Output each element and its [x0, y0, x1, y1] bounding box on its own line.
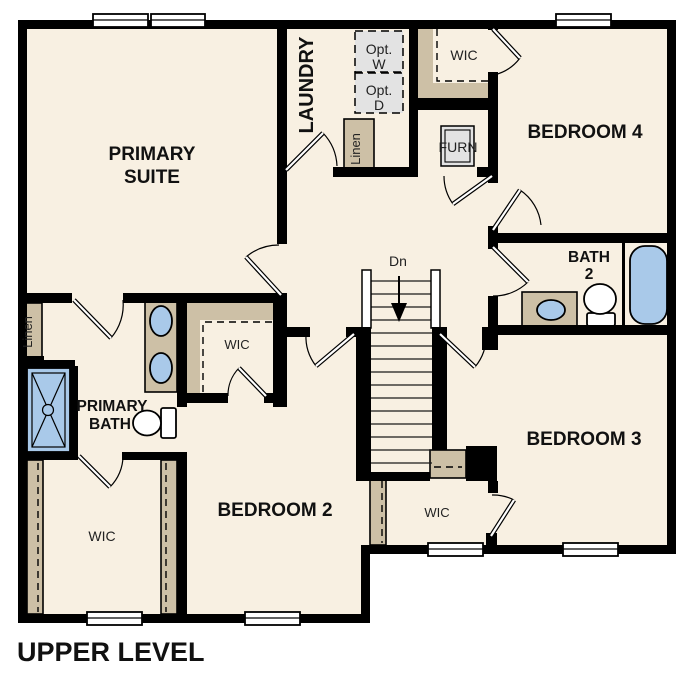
wall-primary-east	[277, 24, 287, 244]
primary-suite-label-line1: PRIMARY	[109, 144, 196, 165]
stairs-dn-label: Dn	[389, 253, 407, 269]
stair-rail-left	[362, 270, 371, 328]
wall-stairs-east	[432, 327, 447, 450]
wall-primary-south-2	[123, 293, 287, 303]
bath2-label-line2: 2	[585, 266, 594, 283]
window-bedroom4	[556, 14, 611, 27]
primary-bath-label-line2: BATH	[89, 416, 131, 433]
washer-label-line1: Opt.	[366, 41, 392, 57]
floor-plan-canvas: Opt. W Opt. D	[0, 0, 687, 687]
primary-vanity-sink-1	[150, 306, 172, 336]
wall-primarywic-east	[273, 293, 287, 407]
window-wic-bedroom3	[428, 543, 483, 556]
bedroom4-label: BEDROOM 4	[527, 122, 643, 143]
shower-drain	[43, 405, 54, 416]
window-wic-bottom-left	[87, 612, 142, 625]
wall-bed3-west-stub	[482, 327, 498, 350]
bath2-label-line1: BATH	[568, 249, 610, 266]
wall-exterior-bottom-right	[361, 545, 676, 554]
wall-exterior-step	[361, 545, 370, 623]
dryer-label-line1: Opt.	[366, 82, 392, 98]
primary-vanity-sink-2	[150, 353, 172, 383]
laundry-label: LAUNDRY	[296, 36, 318, 134]
wall-bed2-west	[177, 452, 187, 623]
primary-suite-label-line2: SUITE	[124, 167, 180, 188]
wall-primarywic-west	[177, 293, 187, 407]
wall-bath2-north	[488, 233, 676, 243]
toilet-bowl	[584, 284, 616, 314]
wall-tub-partition	[622, 243, 625, 327]
wic-b3-shelf-top	[430, 450, 466, 478]
optional-dryer: Opt. D	[355, 73, 403, 113]
bedroom2-label: BEDROOM 2	[217, 500, 332, 521]
wall-stairs-west	[356, 327, 371, 481]
bath2-sink	[537, 300, 565, 320]
wic-bottom-left-label: WIC	[88, 528, 115, 544]
wall-exterior-right	[667, 20, 676, 554]
wic-b3-shelf-left	[370, 478, 386, 545]
wall-bathhall-south-1	[18, 452, 78, 460]
primary-wic-label: WIC	[224, 337, 249, 352]
primary-wic-shelf-left	[187, 303, 200, 403]
wall-bed4-west-mid	[488, 72, 498, 183]
wall-shower-north	[18, 360, 75, 368]
wall-primary-south-1	[18, 293, 72, 303]
wall-wictop-south	[409, 98, 498, 110]
window-bedroom2	[245, 612, 300, 625]
linen-left-label: Linen	[20, 316, 35, 348]
wall-wicb3-east-top	[488, 481, 498, 493]
bathtub	[630, 246, 667, 324]
toilet-tank	[161, 408, 176, 438]
wall-stairs-south	[356, 472, 430, 481]
furnace-label: FURN	[439, 139, 478, 155]
optional-washer: Opt. W	[355, 31, 403, 72]
wall-laundry-south-2	[335, 167, 413, 177]
washer-label-line2: W	[372, 56, 386, 72]
plan-title: UPPER LEVEL	[17, 637, 205, 667]
bedroom3-label: BEDROOM 3	[526, 429, 641, 450]
window-primary-suite-2	[151, 14, 205, 27]
window-bedroom3	[563, 543, 618, 556]
wic-top-label: WIC	[450, 47, 477, 63]
wall-primarywic-south-1	[177, 393, 228, 403]
window-primary-suite-1	[93, 14, 148, 27]
wic-bedroom3-label: WIC	[424, 505, 449, 520]
wic-bl-shelf-left	[27, 460, 43, 614]
wall-bath2-south	[488, 325, 676, 335]
wic-top-shelf-bottom	[418, 83, 488, 98]
primary-bath-label-line1: PRIMARY	[77, 398, 149, 415]
dryer-label-line2: D	[374, 97, 384, 113]
wic-bl-shelf-right	[161, 460, 177, 614]
stair-rail-right	[431, 270, 440, 328]
linen-top-label: Linen	[348, 133, 363, 165]
bath2-toilet	[584, 284, 616, 326]
shower	[27, 368, 70, 452]
toilet-tank	[587, 313, 615, 326]
wall-exterior-bottom-left	[18, 614, 370, 623]
wall-wicb3-corner	[466, 446, 497, 481]
floor-plan-page: Opt. W Opt. D	[0, 0, 687, 687]
